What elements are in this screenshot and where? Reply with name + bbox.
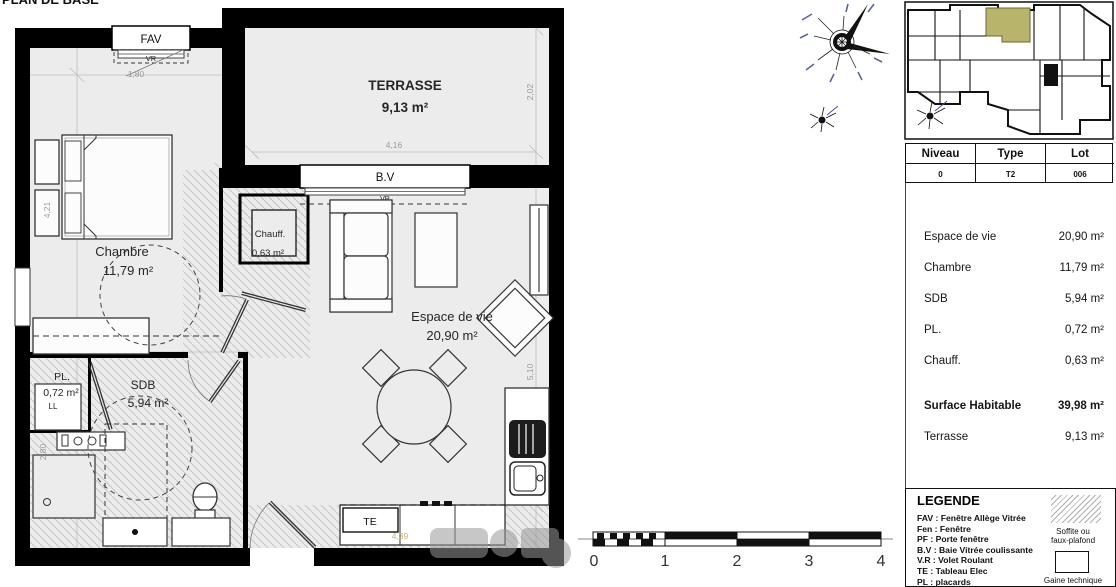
left-wall-window bbox=[15, 268, 30, 326]
dim-2-80: 2,80 bbox=[38, 443, 48, 460]
fav-label: FAV bbox=[141, 34, 162, 46]
pl-name: PL. bbox=[54, 371, 70, 383]
col-header-type: Type bbox=[976, 144, 1046, 164]
dim-4-39: 4,39 bbox=[392, 531, 409, 541]
value-lot: 006 bbox=[1046, 164, 1114, 184]
svg-text:3: 3 bbox=[805, 553, 814, 570]
dim-4-16: 4,16 bbox=[386, 140, 403, 150]
legend-item: B.V : Baie Vitrée coulissante bbox=[917, 545, 1033, 556]
soffit-hatch-swatch bbox=[1051, 495, 1101, 523]
scale-bar-ticks: 0 1 2 3 4 bbox=[590, 553, 886, 570]
area-row: Espace de vie 20,90 m² bbox=[906, 231, 1114, 247]
tall-cupboard bbox=[530, 205, 548, 295]
svg-text:0: 0 bbox=[590, 553, 599, 570]
legend-item: FAV : Fenêtre Allège Vitrée bbox=[917, 513, 1033, 524]
gaine-caption: Gaine technique bbox=[1033, 576, 1113, 585]
dim-5-10: 5,10 bbox=[525, 363, 535, 380]
area-row-terrasse: Terrasse 9,13 m² bbox=[906, 431, 1114, 447]
sofa bbox=[330, 200, 392, 312]
terrasse-name: TERRASSE bbox=[368, 78, 442, 93]
legend-item: V.R : Volet Roulant bbox=[917, 555, 1033, 566]
area-row: Chauff. 0,63 m² bbox=[906, 355, 1114, 371]
col-header-lot: Lot bbox=[1046, 144, 1114, 164]
sun-icon-left bbox=[810, 106, 838, 132]
dim-2-02: 2,02 bbox=[525, 83, 535, 100]
legend-item: TE : Tableau Elec bbox=[917, 566, 1033, 577]
gaine-technique-swatch bbox=[1055, 551, 1089, 573]
sdb-area: 5,94 m² bbox=[128, 396, 169, 410]
bv-label: B.V bbox=[376, 172, 395, 184]
areas-list: Espace de vie 20,90 m² Chambre 11,79 m² … bbox=[905, 183, 1114, 488]
coffee-table bbox=[415, 213, 457, 287]
svg-text:1: 1 bbox=[661, 553, 670, 570]
svg-text:4: 4 bbox=[877, 553, 886, 570]
legend-item: PF : Porte fenêtre bbox=[917, 534, 1033, 545]
chauff-name: Chauff. bbox=[255, 229, 285, 240]
chauff-area: 0,63 m² bbox=[252, 248, 284, 259]
area-row: PL. 0,72 m² bbox=[906, 324, 1114, 340]
floor-plan-page: PLAN DE BASE bbox=[0, 0, 1116, 587]
pl-area: 0,72 m² bbox=[43, 387, 79, 399]
value-niveau: 0 bbox=[906, 164, 976, 184]
area-row: SDB 5,94 m² bbox=[906, 293, 1114, 309]
legend-item: PL : placards bbox=[917, 577, 1033, 587]
chambre-name: Chambre bbox=[95, 244, 148, 259]
area-row: Chambre 11,79 m² bbox=[906, 262, 1114, 278]
area-row-total: Surface Habitable 39,98 m² bbox=[906, 400, 1114, 416]
legend-items: FAV : Fenêtre Allège Vitrée Fen : Fenêtr… bbox=[917, 513, 1033, 587]
soffit-caption-line2: faux-plafond bbox=[1033, 536, 1113, 545]
key-plan bbox=[905, 2, 1113, 139]
chambre-area: 11,79 m² bbox=[103, 263, 154, 278]
legend-title: LEGENDE bbox=[917, 493, 980, 508]
value-type: T2 bbox=[976, 164, 1046, 184]
svg-text:2: 2 bbox=[733, 553, 742, 570]
dim-1-80: 1,80 bbox=[128, 69, 145, 79]
legend-box: LEGENDE FAV : Fenêtre Allège Vitrée Fen … bbox=[905, 488, 1116, 587]
terrasse-area: 9,13 m² bbox=[382, 100, 429, 115]
soffit-caption-line1: Soffite ou bbox=[1033, 527, 1113, 536]
espace-area: 20,90 m² bbox=[426, 328, 478, 343]
fav-vr-label: VR bbox=[146, 54, 157, 63]
espace-name: Espace de vie bbox=[411, 309, 493, 324]
te-label: TE bbox=[363, 516, 376, 528]
sdb-name: SDB bbox=[131, 378, 156, 392]
compass-rose-icon bbox=[800, 4, 890, 132]
lot-info-table: Niveau Type Lot 0 T2 006 bbox=[905, 143, 1113, 183]
scale-bar: 0 1 2 3 4 bbox=[578, 532, 893, 570]
col-header-niveau: Niveau bbox=[906, 144, 976, 164]
dim-4-21: 4,21 bbox=[42, 201, 52, 218]
sheet-title-clipped: PLAN DE BASE bbox=[2, 0, 99, 7]
pl-sub: LL bbox=[49, 402, 58, 411]
legend-item: Fen : Fenêtre bbox=[917, 524, 1033, 535]
